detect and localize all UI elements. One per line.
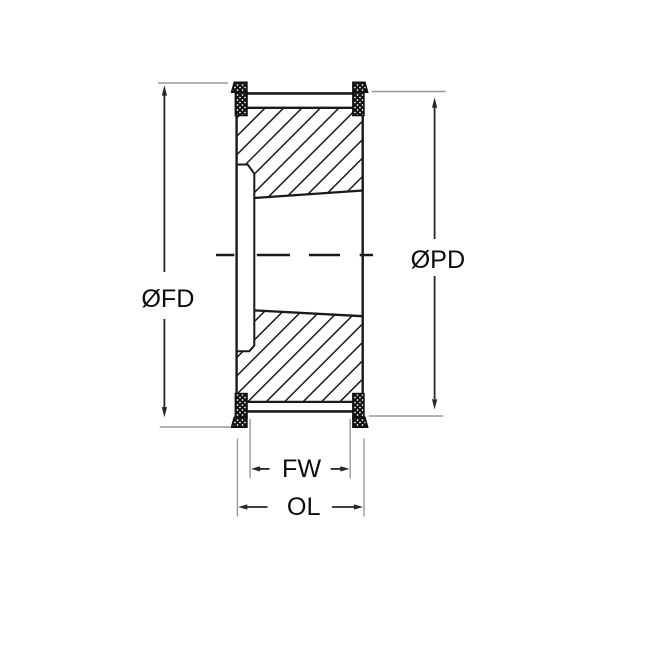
svg-text:ØPD: ØPD xyxy=(411,246,466,274)
svg-text:ØFD: ØFD xyxy=(141,285,194,313)
svg-text:OL: OL xyxy=(287,493,321,521)
svg-text:FW: FW xyxy=(282,455,321,483)
